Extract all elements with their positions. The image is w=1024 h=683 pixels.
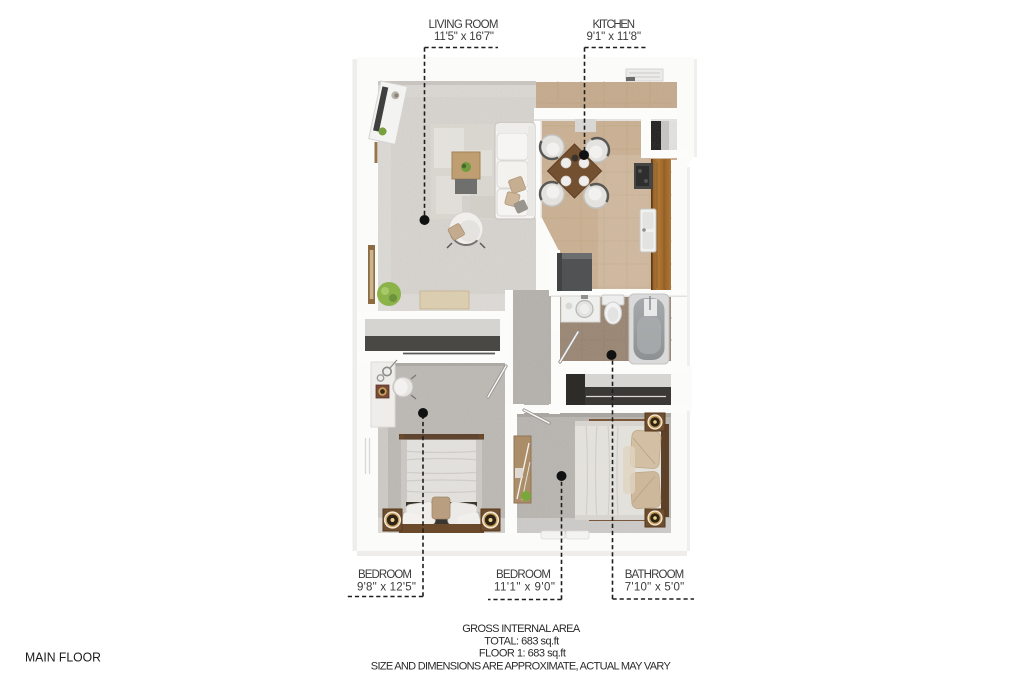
- svg-text:TOTAL: 683 sq.ft: TOTAL: 683 sq.ft: [484, 636, 559, 648]
- svg-text:GROSS INTERNAL AREA: GROSS INTERNAL AREA: [462, 623, 581, 635]
- svg-text:LIVING ROOM: LIVING ROOM: [429, 19, 499, 31]
- svg-text:7'10" x 5'0": 7'10" x 5'0": [625, 582, 685, 594]
- svg-text:9'8" x 12'5": 9'8" x 12'5": [357, 582, 416, 594]
- svg-text:FLOOR 1: 683 sq.ft: FLOOR 1: 683 sq.ft: [479, 648, 566, 660]
- svg-text:BATHROOM: BATHROOM: [625, 569, 685, 581]
- svg-text:BEDROOM: BEDROOM: [358, 569, 412, 581]
- svg-text:MAIN FLOOR: MAIN FLOOR: [25, 651, 101, 665]
- svg-text:BEDROOM: BEDROOM: [496, 569, 551, 581]
- svg-text:SIZE AND DIMENSIONS ARE APPROX: SIZE AND DIMENSIONS ARE APPROXIMATE, ACT…: [371, 661, 672, 673]
- svg-text:11'1" x 9'0": 11'1" x 9'0": [494, 582, 555, 594]
- svg-text:9'1" x 11'8": 9'1" x 11'8": [587, 31, 642, 43]
- svg-text:11'5" x 16'7": 11'5" x 16'7": [434, 31, 494, 43]
- svg-text:KITCHEN: KITCHEN: [593, 19, 636, 31]
